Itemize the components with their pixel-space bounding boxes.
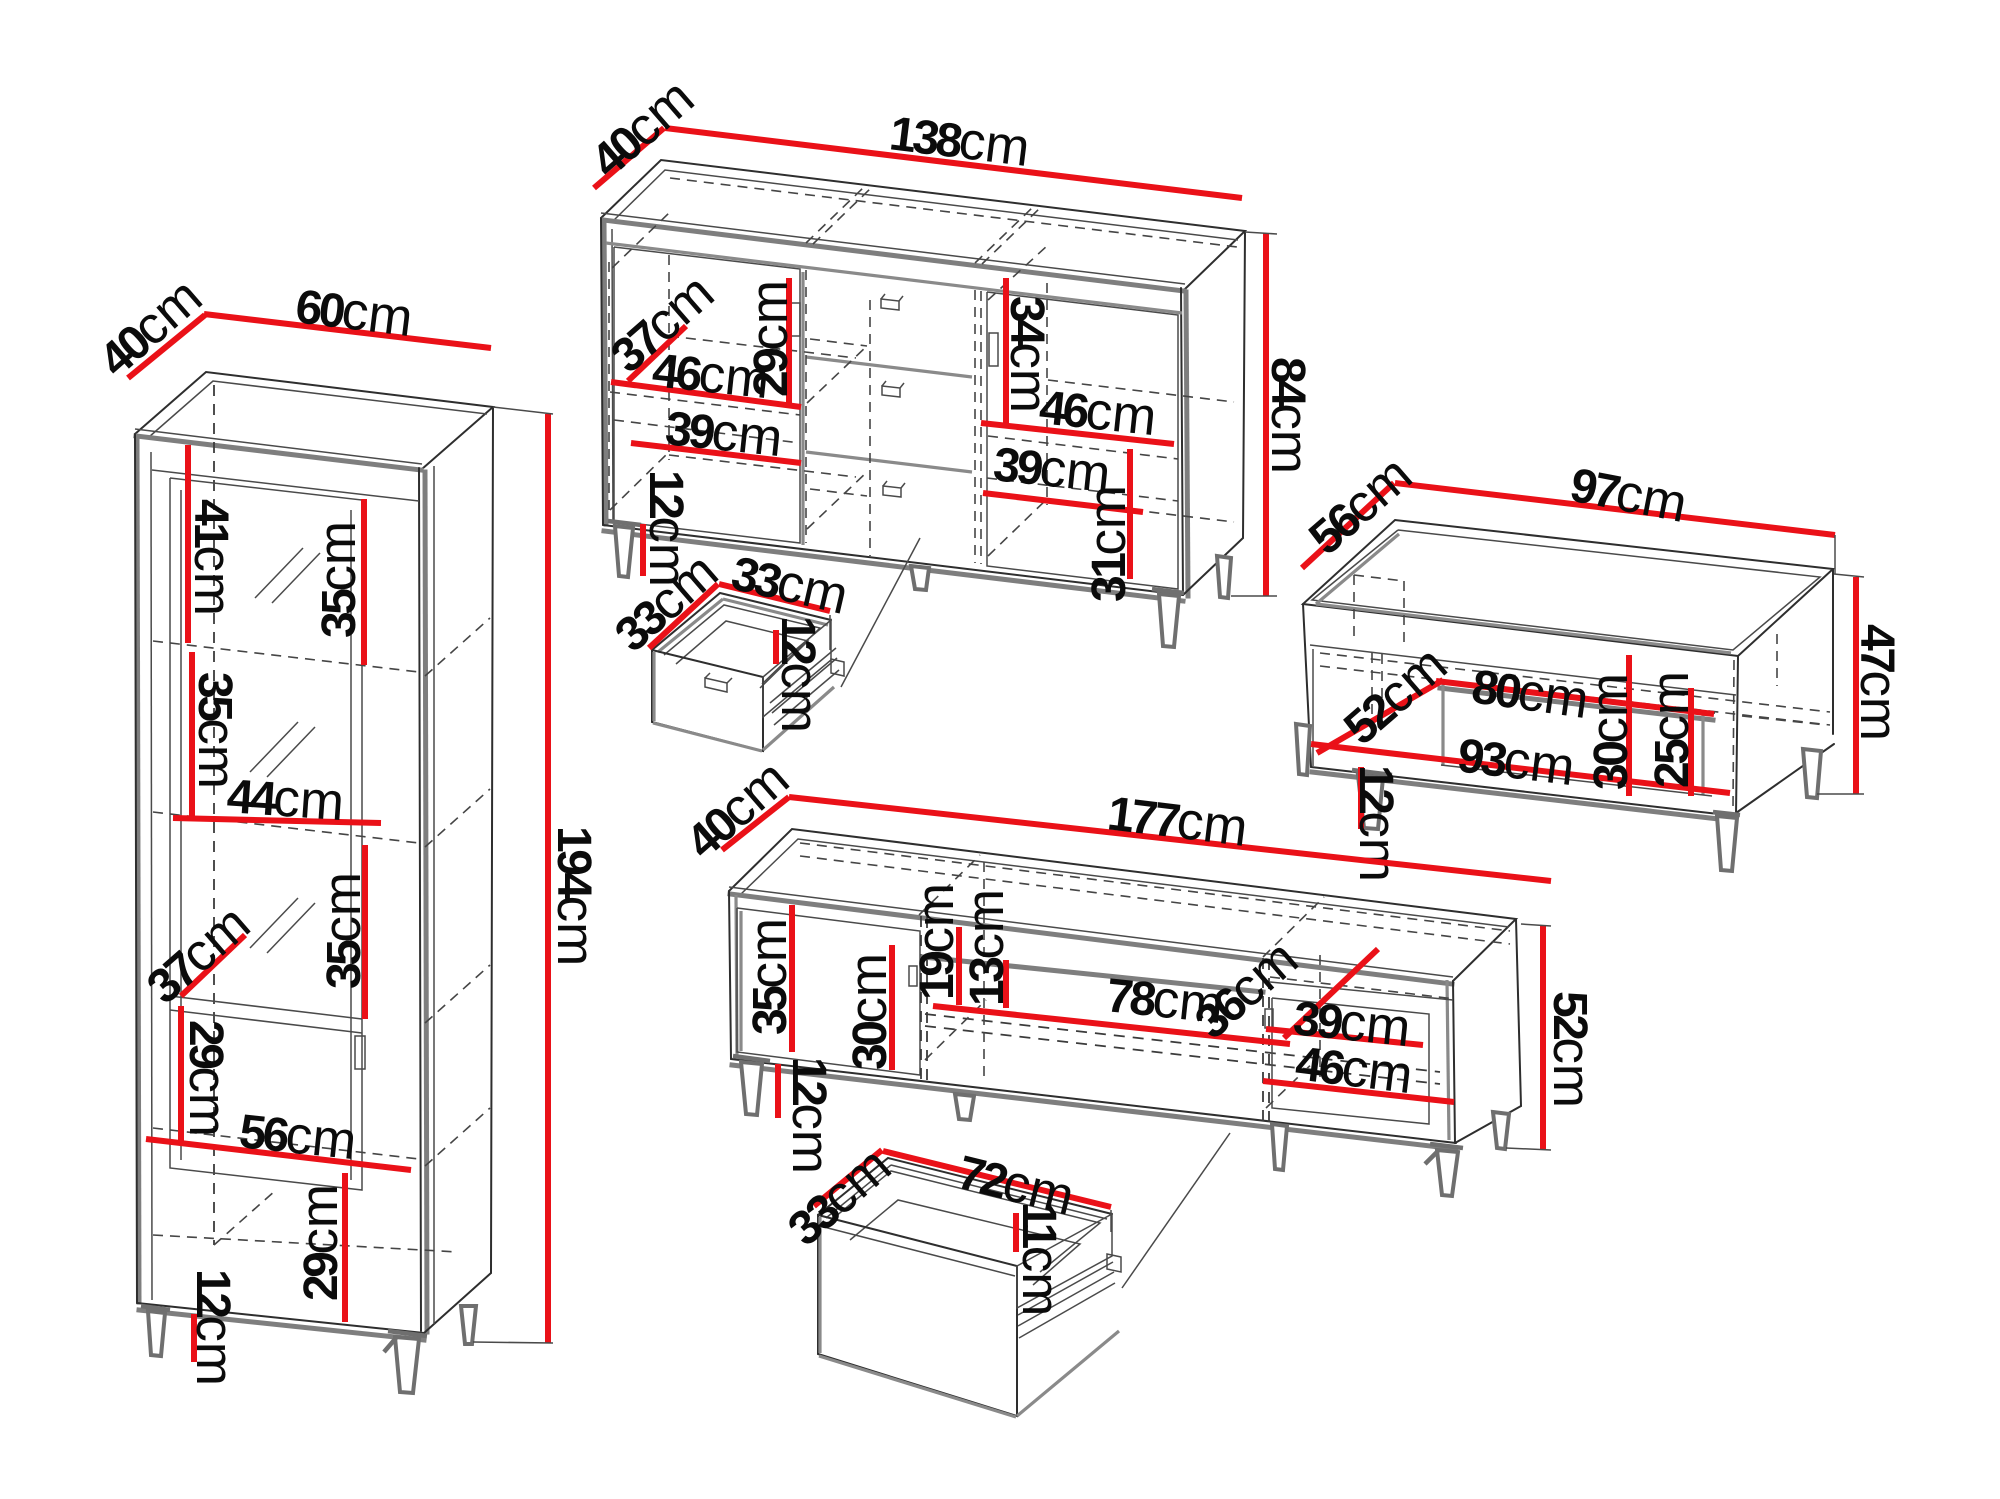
svg-text:35cm: 35cm [308,521,367,638]
svg-text:35cm: 35cm [313,872,372,989]
svg-text:194cm: 194cm [546,826,605,966]
svg-text:35cm: 35cm [739,918,798,1035]
svg-text:25cm: 25cm [1641,671,1700,788]
svg-text:29cm: 29cm [740,280,799,397]
svg-text:31cm: 31cm [1078,485,1137,602]
svg-text:30cm: 30cm [839,953,898,1070]
svg-text:11cm: 11cm [1011,1202,1070,1316]
svg-text:13cm: 13cm [956,889,1015,1006]
svg-text:29cm: 29cm [178,1020,237,1137]
svg-text:30cm: 30cm [1580,673,1639,790]
svg-text:47cm: 47cm [1849,624,1908,741]
svg-text:84cm: 84cm [1260,357,1319,474]
svg-text:12cm: 12cm [185,1269,244,1386]
svg-text:44cm: 44cm [225,765,346,832]
svg-text:52cm: 52cm [1542,991,1601,1108]
svg-text:41cm: 41cm [183,499,242,616]
svg-text:12cm: 12cm [781,1057,840,1174]
svg-text:12cm: 12cm [770,616,829,733]
svg-text:29cm: 29cm [290,1184,349,1301]
